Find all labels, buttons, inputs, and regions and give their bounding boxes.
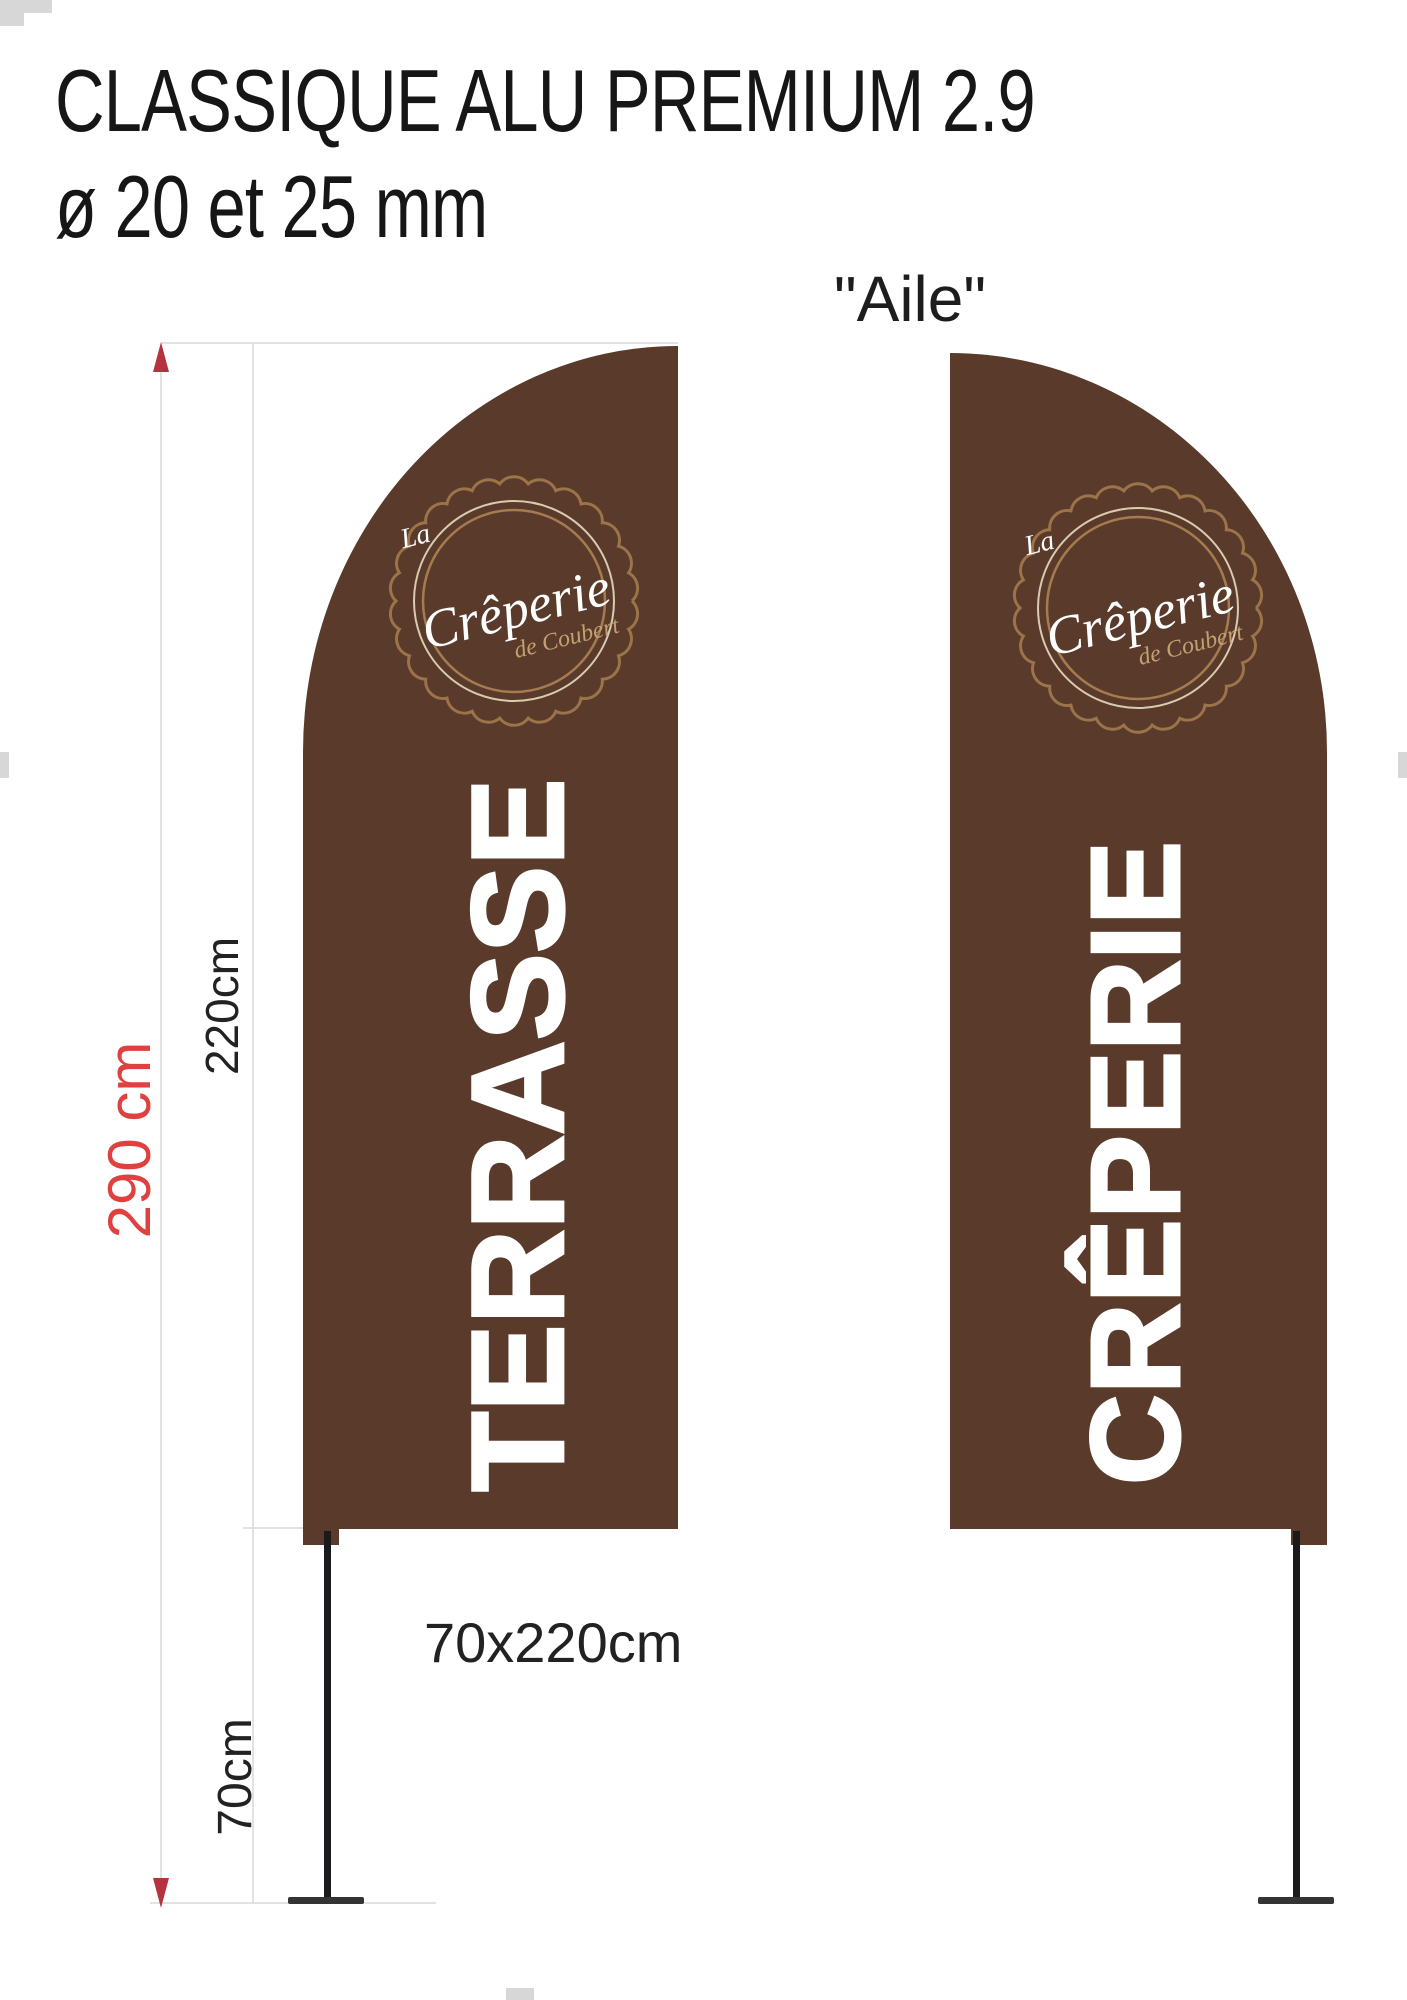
left-flag-pole (324, 1531, 331, 1900)
flag-size-label: 70x220cm (424, 1611, 682, 1674)
left-flag-pole-pocket (303, 1529, 339, 1545)
left-flag-text: TERRASSE (444, 778, 591, 1491)
total-height-label: 290 cm (96, 1042, 163, 1239)
proof-sheet: CLASSIQUE ALU PREMIUM 2.9 ø 20 et 25 mm … (0, 0, 1407, 2000)
right-flag-pole (1293, 1531, 1300, 1900)
flag-height-label: 220cm (196, 937, 248, 1075)
flags-diagram: La Crêperie de Coubert 290 cm 220cm 70cm… (0, 0, 1407, 2000)
right-flag-text: CRÊPERIE (1065, 841, 1206, 1485)
right-flag-base (1258, 1897, 1334, 1904)
arrow-up-icon (153, 342, 169, 372)
pole-bottom-label: 70cm (209, 1718, 262, 1835)
left-flag-base (288, 1897, 364, 1904)
